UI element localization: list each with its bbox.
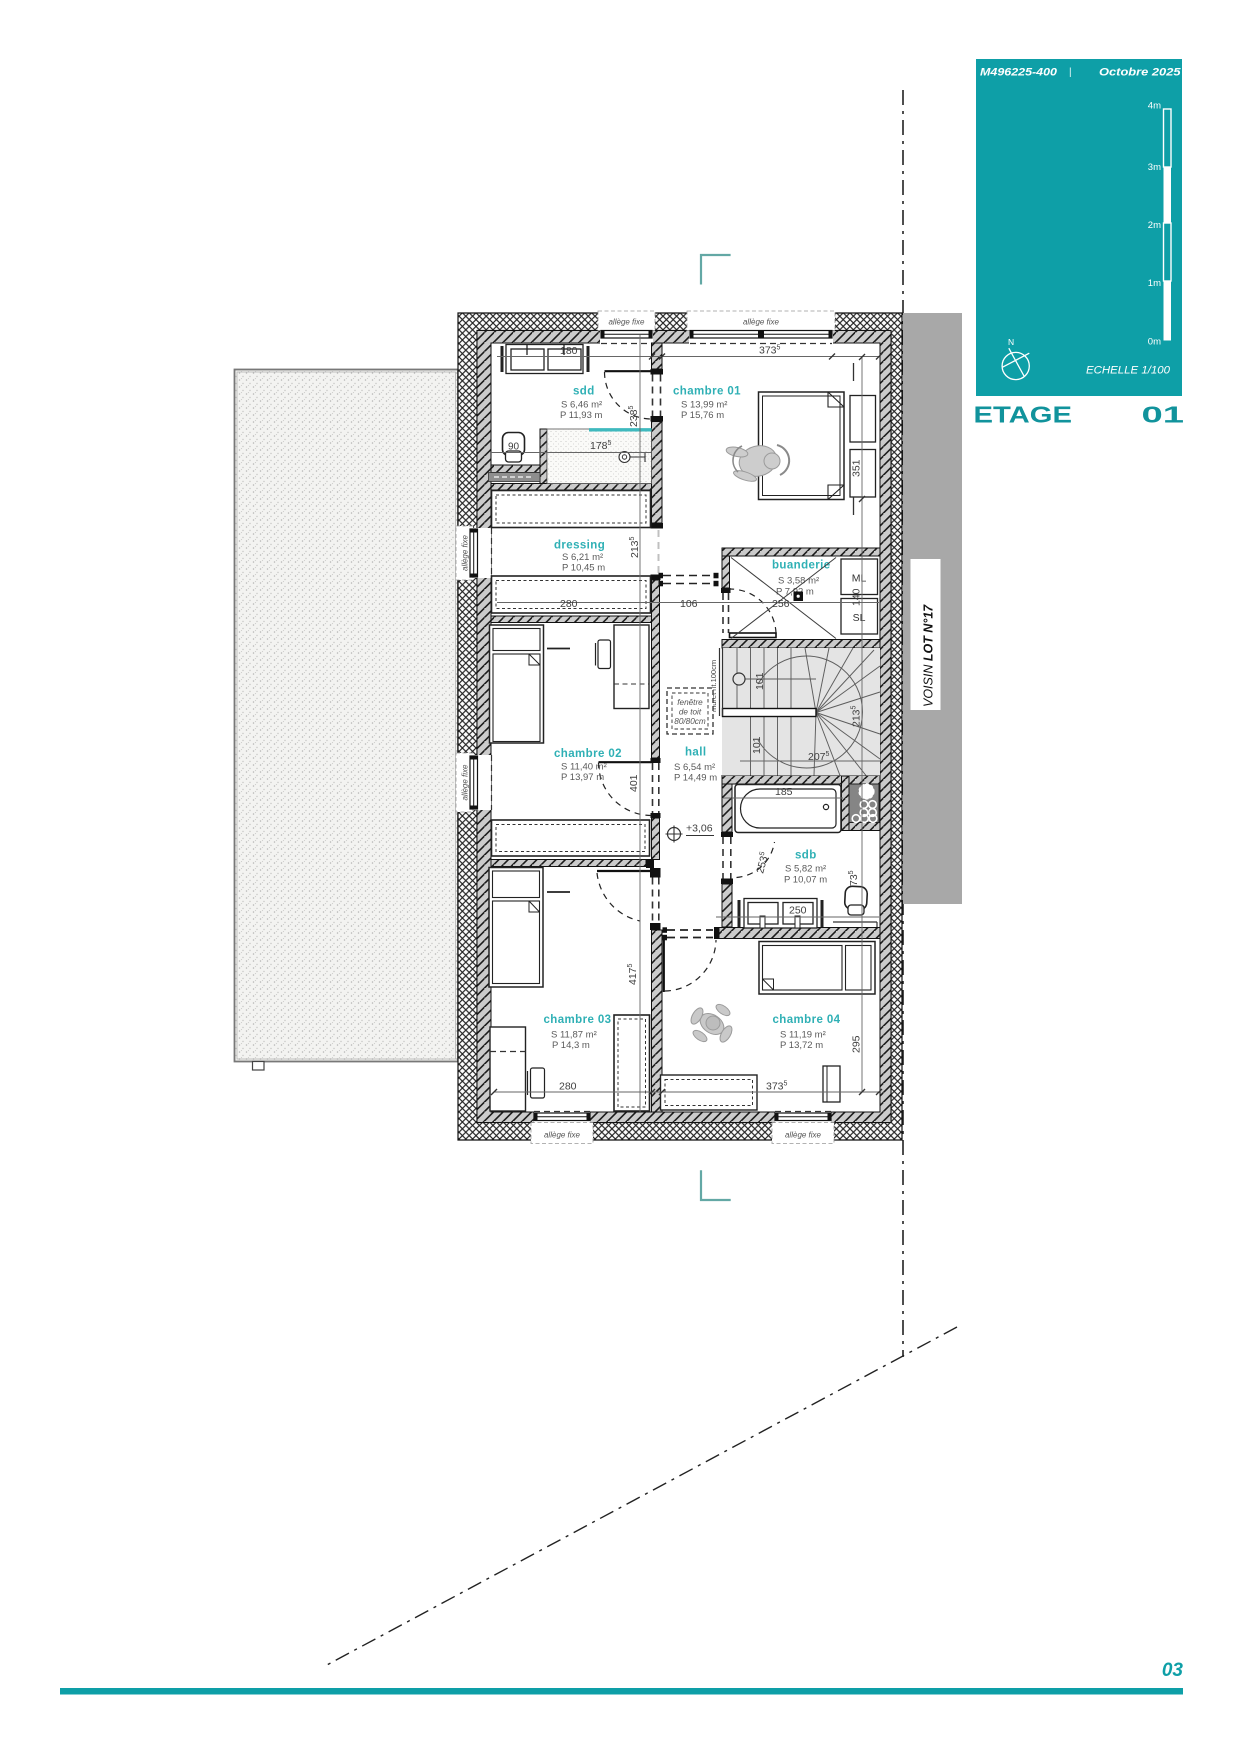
svg-text:01: 01 — [1142, 402, 1185, 428]
svg-text:S 11,40 m²: S 11,40 m² — [561, 762, 607, 773]
svg-text:4m: 4m — [1148, 101, 1161, 112]
svg-text:|: | — [1069, 67, 1072, 78]
svg-text:2m: 2m — [1148, 220, 1161, 231]
svg-text:P 14,3 m: P 14,3 m — [552, 1040, 590, 1051]
svg-text:256: 256 — [772, 598, 790, 610]
svg-text:S 3,58 m²: S 3,58 m² — [778, 576, 819, 587]
svg-text:allège fixe: allège fixe — [461, 534, 470, 571]
svg-text:3m: 3m — [1148, 162, 1161, 173]
svg-text:S 6,46 m²: S 6,46 m² — [561, 400, 602, 411]
svg-text:280: 280 — [560, 598, 578, 610]
svg-text:S 11,19 m²: S 11,19 m² — [780, 1030, 826, 1041]
svg-text:Octobre 2025: Octobre 2025 — [1099, 67, 1182, 79]
svg-text:S 6,54 m²: S 6,54 m² — [674, 762, 715, 773]
svg-text:P 11,93 m: P 11,93 m — [560, 410, 603, 421]
svg-text:N: N — [1008, 337, 1014, 347]
svg-text:P 13,72 m: P 13,72 m — [780, 1040, 823, 1051]
svg-text:sdb: sdb — [795, 850, 817, 862]
svg-text:185: 185 — [775, 786, 793, 798]
svg-text:S 13,99 m²: S 13,99 m² — [681, 400, 727, 411]
svg-text:0m: 0m — [1148, 337, 1161, 348]
svg-text:P 10,45 m: P 10,45 m — [562, 563, 605, 574]
svg-text:140: 140 — [851, 588, 863, 606]
svg-text:401: 401 — [628, 774, 640, 792]
svg-text:sdd: sdd — [573, 386, 595, 398]
svg-text:P 13,97 m: P 13,97 m — [561, 772, 604, 783]
svg-text:106: 106 — [680, 598, 698, 610]
svg-text:SL: SL — [853, 612, 866, 624]
svg-text:101: 101 — [754, 672, 766, 690]
svg-text:M496225-400: M496225-400 — [980, 67, 1058, 79]
svg-text:180: 180 — [560, 345, 578, 357]
svg-text:allège fixe: allège fixe — [743, 318, 780, 327]
svg-text:S 6,21 m²: S 6,21 m² — [562, 552, 603, 563]
svg-text:80/80cm: 80/80cm — [674, 717, 706, 726]
svg-text:chambre 02: chambre 02 — [554, 748, 622, 760]
svg-text:allège fixe: allège fixe — [608, 318, 645, 327]
svg-text:250: 250 — [789, 905, 807, 917]
svg-text:buanderie: buanderie — [772, 560, 831, 572]
svg-text:VOISIN LOT N°17: VOISIN LOT N°17 — [922, 604, 936, 707]
svg-text:ETAGE: ETAGE — [974, 402, 1073, 428]
svg-text:101: 101 — [751, 736, 763, 754]
svg-text:allège fixe: allège fixe — [544, 1131, 581, 1140]
svg-text:chambre 04: chambre 04 — [773, 1014, 841, 1026]
svg-text:ML: ML — [852, 573, 867, 585]
svg-text:hall: hall — [685, 747, 706, 759]
svg-text:90: 90 — [508, 442, 520, 453]
svg-text:S 11,87 m²: S 11,87 m² — [551, 1030, 597, 1041]
svg-text:dressing: dressing — [554, 540, 605, 552]
svg-text:280: 280 — [559, 1081, 577, 1093]
svg-text:P 14,49 m: P 14,49 m — [674, 773, 717, 784]
svg-text:295: 295 — [851, 1035, 863, 1053]
svg-text:351: 351 — [851, 459, 863, 477]
svg-text:P 10,07 m: P 10,07 m — [784, 875, 827, 886]
svg-text:+3,06: +3,06 — [686, 823, 713, 835]
svg-text:allège fixe: allège fixe — [785, 1131, 822, 1140]
svg-text:chambre 01: chambre 01 — [673, 386, 741, 398]
svg-text:allège fixe: allège fixe — [461, 764, 470, 801]
svg-text:fenêtre: fenêtre — [677, 698, 703, 707]
svg-text:1m: 1m — [1148, 278, 1161, 289]
svg-text:P 15,76 m: P 15,76 m — [681, 410, 724, 421]
svg-text:de toit: de toit — [679, 708, 702, 717]
svg-text:S 5,82 m²: S 5,82 m² — [785, 864, 826, 875]
svg-text:03: 03 — [1162, 1660, 1184, 1681]
svg-text:chambre 03: chambre 03 — [544, 1014, 612, 1026]
svg-text:ECHELLE 1/100: ECHELLE 1/100 — [1086, 365, 1171, 377]
